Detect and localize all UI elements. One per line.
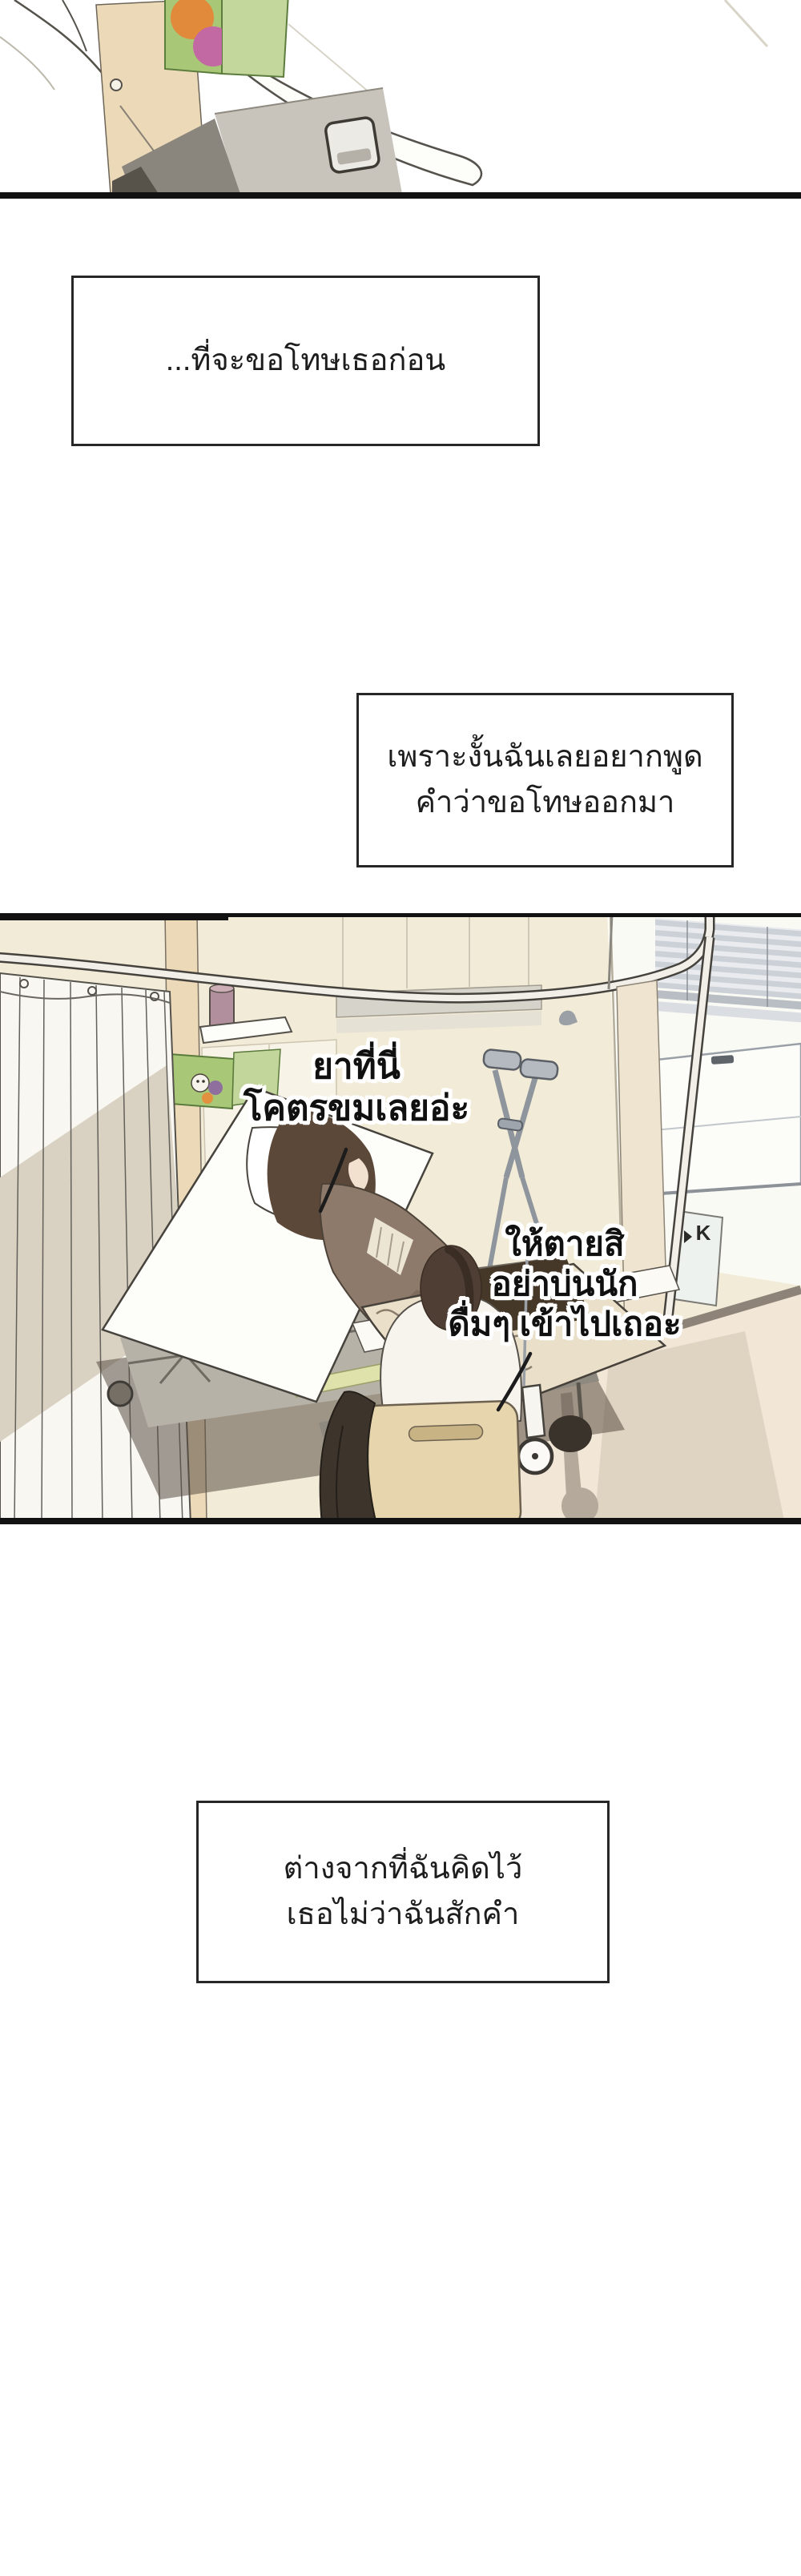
window-handle (711, 1055, 735, 1065)
speech-line: ดื่มๆ เข้าไปเถอะ (448, 1304, 681, 1344)
bed-caster (108, 1382, 132, 1406)
speech-bubble-patient: ยาที่นี่ โคตรขมเลยอ่ะ (244, 1046, 469, 1129)
narration-line: เพราะงั้นฉันเลยอยากพูด (387, 735, 702, 780)
cabinet-knob (111, 79, 122, 91)
medicine-cup (210, 987, 234, 1028)
hospital-room-art: K (0, 913, 801, 1524)
chair (360, 1401, 521, 1524)
narration-text: ...ที่จะขอโทษเธอก่อน (166, 338, 446, 384)
drawer-handle (324, 117, 380, 174)
speech-line: ยาที่นี่ (244, 1046, 469, 1088)
speech-bubble-visitor: ให้ตายสิ อย่าบ่นนัก ดื่มๆ เข้าไปเถอะ (448, 1224, 681, 1344)
hospital-room-panel: K (0, 913, 801, 1524)
comic-page: ...ที่จะขอโทษเธอก่อน เพราะงั้นฉันเลยอยาก… (0, 0, 801, 2576)
narration-line: ต่างจากที่ฉันคิดไว้ (284, 1846, 523, 1892)
panel-bottom-border (0, 1518, 801, 1524)
narration-box-1: ...ที่จะขอโทษเธอก่อน (71, 276, 540, 446)
panel-top-border-thick (0, 913, 228, 920)
narration-text: เพราะงั้นฉันเลยอยากพูด คำว่าขอโทษออกมา (387, 735, 702, 826)
narration-line: เธอไม่ว่าฉันสักคำ (284, 1892, 523, 1938)
top-panel-bottom-border (0, 192, 801, 199)
orange-item (202, 1093, 213, 1104)
room-sign-label: K (696, 1221, 711, 1245)
narration-box-3: ต่างจากที่ฉันคิดไว้ เธอไม่ว่าฉันสักคำ (196, 1801, 610, 1983)
owl-sticker (191, 1074, 209, 1092)
speech-line: ให้ตายสิ (448, 1224, 681, 1264)
iv-stand-leg (522, 1385, 545, 1438)
speech-line: โคตรขมเลยอ่ะ (244, 1088, 469, 1129)
narration-line: ...ที่จะขอโทษเธอก่อน (166, 338, 446, 384)
dark-bag (549, 1415, 592, 1452)
chair-backrest (360, 1401, 521, 1524)
owl-sticker-purple (208, 1081, 223, 1095)
top-panel-art (0, 0, 801, 199)
chair-handle-slot (409, 1424, 483, 1441)
narration-box-2: เพราะงั้นฉันเลยอยากพูด คำว่าขอโทษออกมา (356, 693, 734, 867)
speech-line: อย่าบ่นนัก (448, 1264, 681, 1304)
narration-line: คำว่าขอโทษออกมา (387, 780, 702, 826)
narration-text: ต่างจากที่ฉันคิดไว้ เธอไม่ว่าฉันสักคำ (284, 1846, 523, 1938)
juice-box (165, 0, 288, 77)
